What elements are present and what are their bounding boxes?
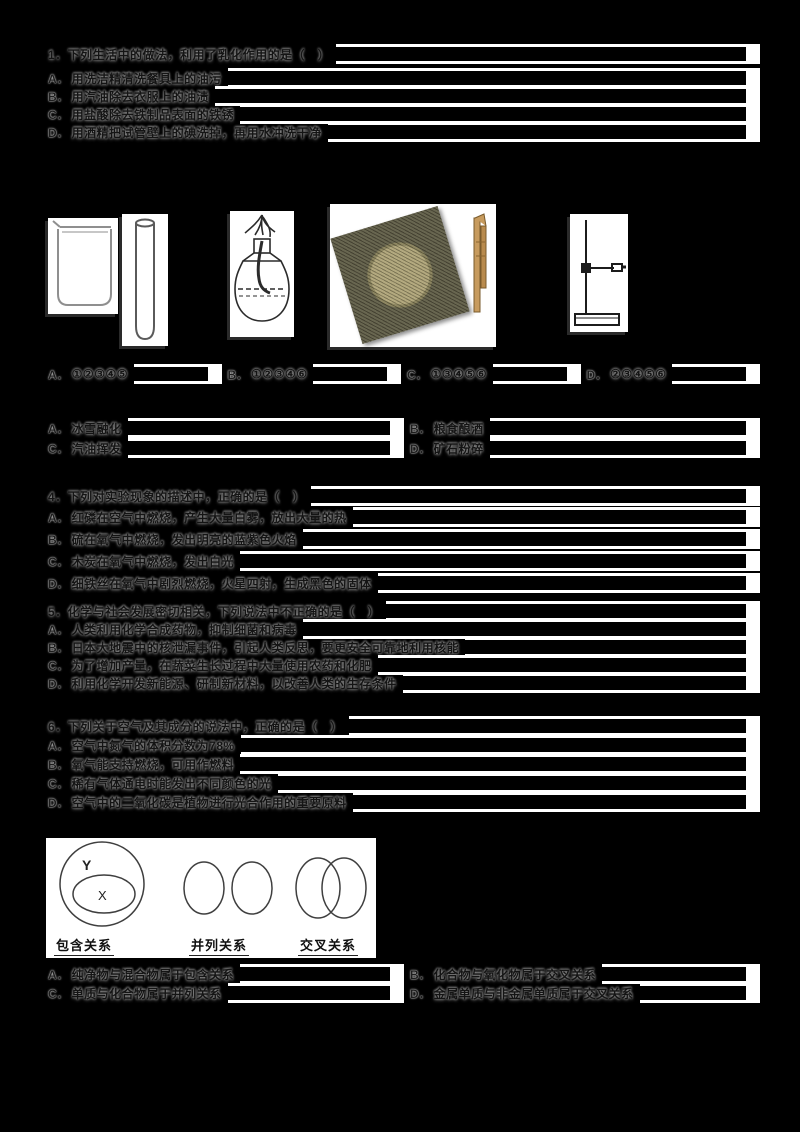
redaction-bar — [490, 418, 760, 438]
q2-option-d: D． ②③④⑤⑥ — [587, 366, 667, 383]
q1-stem: 1．下列生活中的做法，利用了乳化作用的是（ ） — [48, 46, 330, 63]
q3-option-c: C． 汽油挥发 — [48, 438, 410, 458]
option-label: C． — [48, 657, 69, 674]
q3-option-d: D． 矿石粉碎 — [410, 438, 760, 458]
test-tube-image — [122, 214, 168, 346]
redaction-bar — [128, 418, 404, 438]
q7-option-d: D． 金属单质与非金属单质属于交叉关系 — [410, 983, 760, 1003]
option-label: A． — [48, 621, 69, 638]
q1-option-c: C． 用盐酸除去铁制品表面的铁锈 — [48, 104, 760, 124]
q6-option-c: C． 稀有气体通电时能发出不同颜色的光 — [48, 773, 760, 793]
option-text: 氧气能支持燃烧，可用作燃料 — [72, 756, 235, 773]
q5-option-a: A． 人类利用化学合成药物，抑制细菌和病毒 — [48, 619, 760, 639]
q1-stem-line: 1．下列生活中的做法，利用了乳化作用的是（ ） — [48, 44, 760, 64]
redaction-bar — [336, 44, 760, 64]
option-text: ①②③④⑥ — [251, 367, 307, 381]
alcohol-lamp-icon — [230, 211, 294, 337]
q5-option-b: B． 日本大地震中的核泄漏事件，引起人类反思，要更安全可靠地利用核能 — [48, 637, 760, 657]
redaction-bar — [128, 438, 404, 458]
q4-option-b: B． 硫在氧气中燃烧，发出明亮的蓝紫色火焰 — [48, 529, 760, 549]
q6-option-d: D． 空气中的二氧化碳是植物进行光合作用的重要原料 — [48, 792, 760, 812]
redaction-bar — [240, 964, 404, 984]
q5-stem-line: 5．化学与社会发展密切相关，下列说法中不正确的是（ ） — [48, 601, 760, 621]
venn-label-containment: 包含关系 — [54, 935, 114, 956]
option-text: 稀有气体通电时能发出不同颜色的光 — [72, 775, 272, 792]
redaction-bar — [240, 104, 760, 124]
option-text: 冰雪融化 — [72, 420, 122, 437]
option-text: 金属单质与非金属单质属于交叉关系 — [434, 985, 634, 1002]
option-label: A． — [48, 509, 69, 526]
beaker-image — [48, 218, 118, 314]
option-label: C． — [48, 775, 69, 792]
redaction-bar — [328, 122, 760, 142]
redaction-bar — [228, 983, 404, 1003]
option-text: 日本大地震中的核泄漏事件，引起人类反思，要更安全可靠地利用核能 — [72, 639, 460, 656]
q4-stem-line: 4．下列对实验现象的描述中，正确的是（ ） — [48, 486, 760, 506]
redaction-bar — [311, 486, 760, 506]
q5-option-c: C． 为了增加产量，在蔬菜生长过程中大量使用农药和化肥 — [48, 655, 760, 675]
redaction-bar — [349, 716, 760, 736]
option-label: A． — [48, 70, 69, 87]
redaction-bar — [313, 364, 401, 384]
q2-option-c: C． ①③④⑤⑥ — [407, 366, 487, 383]
option-label: B． — [48, 639, 69, 656]
q1-option-d: D． 用酒精把试管壁上的碘洗掉，再用水冲洗干净 — [48, 122, 760, 142]
option-label: D． — [48, 124, 69, 141]
option-text: ②③④⑤⑥ — [610, 367, 666, 381]
option-label: B． — [228, 366, 249, 383]
redaction-bar — [215, 86, 760, 106]
q3-row-cd: C． 汽油挥发 D． 矿石粉碎 — [48, 438, 760, 458]
option-label: B． — [48, 756, 69, 773]
alcohol-lamp-image — [230, 211, 294, 337]
option-label: D． — [48, 675, 69, 692]
q2-options-row: A． ①②③④⑤ B． ①②③④⑥ C． ①③④⑤⑥ D． ②③④⑤⑥ — [48, 364, 760, 384]
option-text: 空气中的二氧化碳是植物进行光合作用的重要原料 — [72, 794, 347, 811]
option-text: 用汽油除去衣服上的油渍 — [72, 88, 210, 105]
test-tube-holder-icon — [468, 212, 494, 316]
redaction-bar — [602, 964, 760, 984]
q7-option-b: B． 化合物与氧化物属于交叉关系 — [410, 964, 760, 984]
option-label: C． — [48, 440, 69, 457]
option-label: C． — [48, 985, 69, 1002]
option-label: D． — [587, 366, 608, 383]
option-text: 用酒精把试管壁上的碘洗掉，再用水冲洗干净 — [72, 124, 322, 141]
option-label: A． — [48, 737, 69, 754]
option-text: 粮食酿酒 — [434, 420, 484, 437]
exam-page: 1．下列生活中的做法，利用了乳化作用的是（ ） A． 用洗洁精清洗餐具上的油污 … — [0, 0, 800, 1132]
q7-option-a: A． 纯净物与混合物属于包含关系 — [48, 964, 410, 984]
q4-option-d: D． 细铁丝在氧气中剧烈燃烧，火星四射，生成黑色的固体 — [48, 573, 760, 593]
q5-stem: 5．化学与社会发展密切相关，下列说法中不正确的是（ ） — [48, 603, 380, 620]
option-text: 空气中氮气的体积分数为78% — [72, 737, 235, 754]
q1-option-a: A． 用洗洁精清洗餐具上的油污 — [48, 68, 760, 88]
option-text: 用盐酸除去铁制品表面的铁锈 — [72, 106, 235, 123]
option-text: 为了增加产量，在蔬菜生长过程中大量使用农药和化肥 — [72, 657, 372, 674]
venn-inner-label: X — [98, 888, 107, 903]
option-text: 纯净物与混合物属于包含关系 — [72, 966, 235, 983]
option-text: 硫在氧气中燃烧，发出明亮的蓝紫色火焰 — [72, 531, 297, 548]
q6-stem-line: 6．下列关于空气及其成分的说法中，正确的是（ ） — [48, 716, 760, 736]
iron-stand-icon — [570, 214, 628, 332]
option-text: 木炭在氧气中燃烧，发出白光 — [72, 553, 235, 570]
option-label: B． — [48, 88, 69, 105]
option-label: C． — [48, 106, 69, 123]
q3-row-ab: A． 冰雪融化 B． 粮食酿酒 — [48, 418, 760, 438]
redaction-bar — [378, 655, 760, 675]
redaction-bar — [672, 364, 760, 384]
venn-label-parallel: 并列关系 — [189, 935, 249, 956]
redaction-bar — [240, 754, 760, 774]
option-label: A． — [48, 366, 69, 383]
q7-row-cd: C． 单质与化合物属于并列关系 D． 金属单质与非金属单质属于交叉关系 — [48, 983, 760, 1003]
redaction-bar — [640, 983, 760, 1003]
q3-option-b: B． 粮食酿酒 — [410, 418, 760, 438]
redaction-bar — [386, 601, 760, 621]
option-text: 汽油挥发 — [72, 440, 122, 457]
option-label: D． — [48, 575, 69, 592]
redaction-bar — [134, 364, 222, 384]
redaction-bar — [465, 637, 760, 657]
option-text: ①②③④⑤ — [72, 367, 128, 381]
option-label: D． — [48, 794, 69, 811]
redaction-bar — [240, 551, 760, 571]
option-label: A． — [48, 966, 69, 983]
iron-stand-image — [570, 214, 628, 332]
option-text: 人类利用化学合成药物，抑制细菌和病毒 — [72, 621, 297, 638]
q6-option-a: A． 空气中氮气的体积分数为78% — [48, 735, 760, 755]
venn-diagram-figure: Y X 包含关系 并列关系 交叉关系 — [46, 838, 376, 958]
q5-option-d: D． 利用化学开发新能源、研制新材料，以改善人类的生存条件 — [48, 673, 760, 693]
redaction-bar — [353, 507, 760, 527]
option-label: B． — [410, 966, 431, 983]
option-text: 细铁丝在氧气中剧烈燃烧，火星四射，生成黑色的固体 — [72, 575, 372, 592]
redaction-bar — [241, 735, 760, 755]
q1-option-b: B． 用汽油除去衣服上的油渍 — [48, 86, 760, 106]
q2-option-b: B． ①②③④⑥ — [228, 366, 308, 383]
option-text: 红磷在空气中燃烧，产生大量白雾，放出大量的热 — [72, 509, 347, 526]
redaction-bar — [278, 773, 760, 793]
venn-outer-label: Y — [82, 857, 92, 873]
option-label: C． — [407, 366, 428, 383]
q3-option-a: A． 冰雪融化 — [48, 418, 410, 438]
q7-option-c: C． 单质与化合物属于并列关系 — [48, 983, 410, 1003]
option-text: 单质与化合物属于并列关系 — [72, 985, 222, 1002]
q4-stem: 4．下列对实验现象的描述中，正确的是（ ） — [48, 488, 305, 505]
venn-diagrams-icon: Y X — [46, 838, 376, 934]
option-label: D． — [410, 440, 431, 457]
option-text: ①③④⑤⑥ — [431, 367, 487, 381]
redaction-bar — [378, 573, 760, 593]
option-label: B． — [410, 420, 431, 437]
redaction-bar — [303, 619, 760, 639]
option-label: D． — [410, 985, 431, 1002]
q4-option-a: A． 红磷在空气中燃烧，产生大量白雾，放出大量的热 — [48, 507, 760, 527]
redaction-bar — [228, 68, 760, 88]
redaction-bar — [403, 673, 760, 693]
q7-row-ab: A． 纯净物与混合物属于包含关系 B． 化合物与氧化物属于交叉关系 — [48, 964, 760, 984]
option-text: 矿石粉碎 — [434, 440, 484, 457]
option-text: 利用化学开发新能源、研制新材料，以改善人类的生存条件 — [72, 675, 397, 692]
option-label: A． — [48, 420, 69, 437]
redaction-bar — [493, 364, 581, 384]
redaction-bar — [353, 792, 760, 812]
redaction-bar — [490, 438, 760, 458]
option-label: B． — [48, 531, 69, 548]
test-tube-icon — [122, 214, 168, 346]
q6-option-b: B． 氧气能支持燃烧，可用作燃料 — [48, 754, 760, 774]
q2-option-a: A． ①②③④⑤ — [48, 366, 128, 383]
option-text: 用洗洁精清洗餐具上的油污 — [72, 70, 222, 87]
option-text: 化合物与氧化物属于交叉关系 — [434, 966, 597, 983]
venn-label-intersection: 交叉关系 — [298, 935, 358, 956]
wire-gauze-icon — [330, 206, 469, 344]
q6-stem: 6．下列关于空气及其成分的说法中，正确的是（ ） — [48, 718, 343, 735]
beaker-icon — [48, 218, 118, 314]
option-label: C． — [48, 553, 69, 570]
redaction-bar — [303, 529, 760, 549]
q4-option-c: C． 木炭在氧气中燃烧，发出白光 — [48, 551, 760, 571]
wire-gauze-photo — [330, 204, 496, 347]
